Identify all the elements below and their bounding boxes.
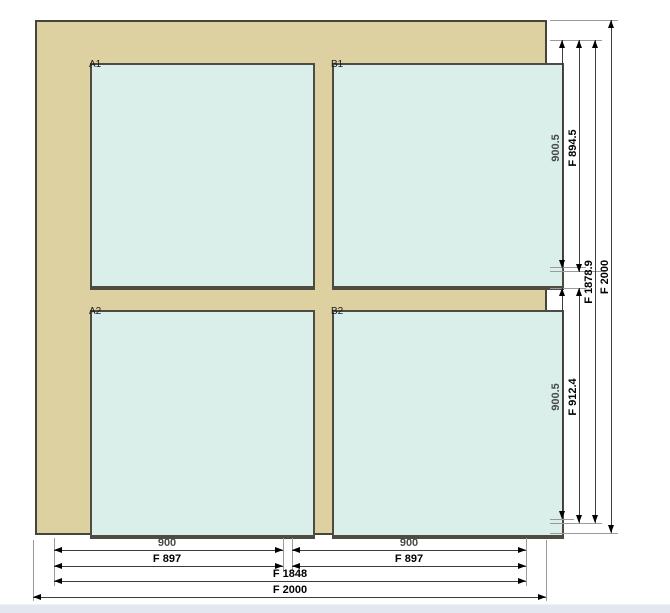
extension-line [550, 523, 602, 524]
dimension-line-sash-bottom-frame [579, 288, 580, 523]
dimension-line-inner-height [595, 40, 596, 523]
pane-label-a2: A2 [89, 307, 101, 317]
extension-line [526, 538, 527, 586]
dimension-line-sash-bottom-nominal [562, 288, 563, 519]
pane-label-b1: B1 [331, 60, 343, 70]
dim-label-sash-top-nominal[interactable]: 900.5 [550, 134, 562, 162]
glass-pane-b2[interactable]: B2 [332, 310, 564, 539]
window-design-canvas: A1 B1 A2 B2 900.5 F 894.5 900.5 F 912.4 … [0, 0, 670, 613]
dimension-line-inner-width [54, 581, 526, 582]
dimension-line-right-frame [292, 566, 526, 567]
extension-line [33, 540, 34, 601]
footer-panel-edge [0, 604, 670, 613]
glass-pane-b1[interactable]: B1 [332, 63, 564, 290]
dim-label-inner-width[interactable]: F 1848 [273, 568, 307, 580]
pane-label-b2: B2 [331, 307, 343, 317]
dimension-line-total-width [33, 597, 546, 598]
dimension-line-right-nominal [292, 550, 526, 551]
glass-pane-a2[interactable]: A2 [90, 310, 315, 539]
dim-label-inner-height[interactable]: F 1878.9 [583, 260, 595, 303]
dimension-line-left-nominal [54, 550, 283, 551]
dim-label-total-height[interactable]: F 2000 [599, 260, 611, 294]
pane-label-a1: A1 [89, 60, 101, 70]
extension-line [550, 533, 618, 534]
dim-label-left-frame[interactable]: F 897 [153, 553, 181, 565]
dim-label-right-frame[interactable]: F 897 [395, 553, 423, 565]
dimension-line-sash-top-nominal [562, 40, 563, 268]
dim-label-sash-top-frame[interactable]: F 894.5 [567, 129, 579, 166]
dim-label-total-width[interactable]: F 2000 [273, 584, 307, 596]
window-frame[interactable]: A1 B1 A2 B2 [35, 20, 547, 535]
extension-line [546, 540, 547, 601]
dim-label-sash-bottom-frame[interactable]: F 912.4 [567, 378, 579, 415]
dim-label-right-nominal[interactable]: 900 [400, 537, 418, 549]
glass-pane-a1[interactable]: A1 [90, 63, 315, 290]
dimension-line-left-frame [54, 566, 283, 567]
extension-line [283, 538, 284, 571]
dim-label-sash-bottom-nominal[interactable]: 900.5 [550, 383, 562, 411]
extension-line [550, 519, 574, 520]
dimension-line-total-height [611, 20, 612, 533]
dim-label-left-nominal[interactable]: 900 [158, 537, 176, 549]
dimension-line-sash-top-frame [579, 40, 580, 272]
